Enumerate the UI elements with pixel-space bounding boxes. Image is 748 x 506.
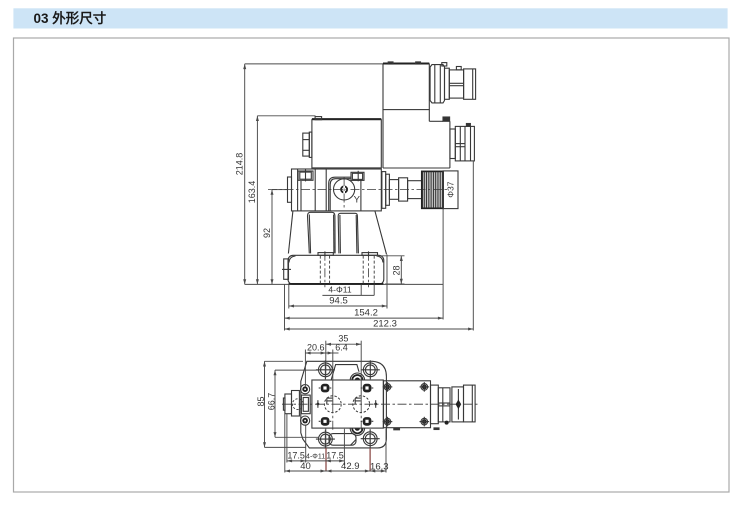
svg-text:20.6: 20.6 (307, 343, 325, 353)
svg-text:Φ37: Φ37 (446, 181, 456, 198)
svg-text:85: 85 (256, 396, 266, 406)
svg-text:17.5: 17.5 (287, 450, 305, 460)
svg-text:16.3: 16.3 (370, 461, 389, 472)
svg-text:4-Φ11: 4-Φ11 (328, 285, 351, 295)
svg-text:6.4: 6.4 (335, 343, 348, 353)
svg-text:212.3: 212.3 (373, 318, 397, 329)
svg-text:66.7: 66.7 (266, 393, 276, 411)
svg-text:Y: Y (354, 195, 361, 206)
svg-text:28: 28 (391, 265, 401, 275)
svg-text:154.2: 154.2 (354, 307, 378, 318)
svg-text:214.8: 214.8 (235, 153, 245, 176)
svg-text:40: 40 (300, 461, 311, 472)
svg-text:92: 92 (262, 228, 272, 238)
svg-text:03 外形尺寸: 03 外形尺寸 (34, 10, 107, 26)
svg-text:163.4: 163.4 (247, 181, 257, 204)
svg-text:17.5: 17.5 (326, 450, 344, 460)
svg-text:42.9: 42.9 (341, 461, 360, 472)
svg-text:94.5: 94.5 (329, 295, 348, 306)
svg-text:4-Φ11: 4-Φ11 (306, 453, 325, 460)
